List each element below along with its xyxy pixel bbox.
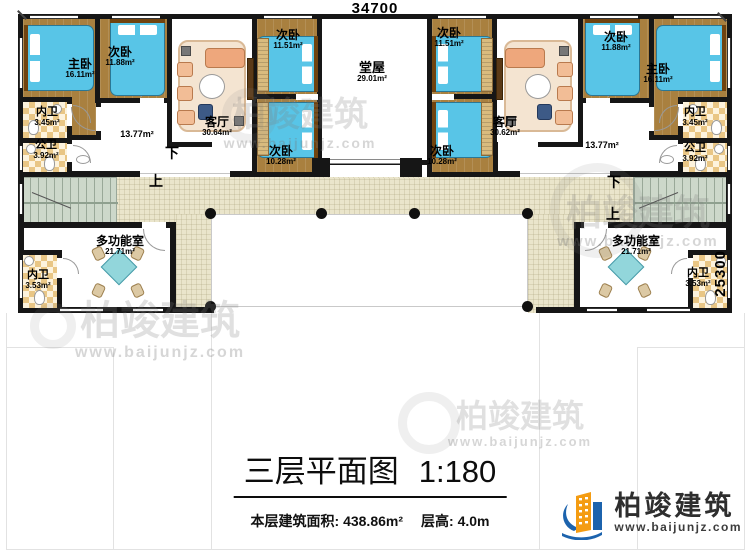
ghost-outline-line [6, 313, 7, 550]
brand-logo-icon [554, 486, 608, 540]
room-label-living-right: 客厅30.62m² [490, 116, 520, 137]
door-opening [140, 98, 164, 103]
floor-height-label: 层高: [421, 513, 458, 529]
window [264, 15, 312, 19]
window [727, 146, 731, 170]
watermark-url: www.baijunjz.com [224, 135, 377, 151]
wall [536, 307, 574, 313]
side-table [559, 46, 569, 56]
title-block: 三层平面图1:180 本层建筑面积: 438.86m²层高: 4.0m [234, 446, 507, 531]
door-opening [142, 222, 166, 228]
room-area: 21.71m² [96, 248, 144, 256]
armchair [177, 62, 193, 77]
room-area: 3.92m² [33, 152, 58, 160]
room-label-main-hall: 堂屋29.01m² [357, 61, 387, 83]
room-label-bath-in-tl: 内卫3.45m² [34, 107, 59, 127]
room-area: 11.51m² [273, 42, 302, 50]
room-name: 公卫 [682, 143, 707, 155]
watermark-brand: 柏竣建筑 [456, 398, 584, 434]
room-name: 多功能室 [96, 235, 144, 248]
room-label-bed1151-left: 次卧11.51m² [273, 29, 302, 50]
staircase-left [21, 177, 117, 227]
toilet-icon [711, 120, 722, 135]
room-area: 10.28m² [427, 158, 457, 166]
armchair [177, 86, 193, 101]
window [30, 15, 78, 19]
room-label-bed1188-left: 次卧11.88m² [105, 46, 134, 67]
armchair [557, 86, 573, 101]
room-area: 3.53m² [25, 282, 50, 290]
coffee-table [199, 74, 225, 99]
room-name: 内卫 [34, 107, 59, 119]
room-area: 3.53m² [685, 280, 710, 288]
door-opening [649, 107, 654, 131]
watermark-url: www.baijunjz.com [75, 344, 245, 362]
door-opening [432, 94, 454, 100]
room-label-multi-left: 多功能室21.71m² [96, 235, 144, 256]
window [19, 146, 23, 170]
floor-area-label: 本层建筑面积: [251, 513, 344, 529]
watermark-logo-icon [30, 303, 76, 349]
armchair [177, 110, 195, 125]
room-label-bath-in-tr: 内卫3.45m² [682, 107, 707, 127]
window [727, 184, 731, 214]
watermark-text: 柏竣建筑www.baijunjz.com [448, 398, 592, 450]
floor-area-value: 438.86m² [343, 513, 403, 529]
door-opening [586, 98, 610, 103]
stair-label-up-right: 上 [606, 207, 620, 221]
stair-label-down-right: 下 [607, 175, 621, 189]
ghost-outline-line [113, 347, 114, 550]
room-name: 多功能室 [612, 235, 660, 248]
room-area: 11.51m² [434, 40, 463, 48]
armchair [557, 62, 573, 77]
door-opening [67, 144, 72, 162]
wall-stub [400, 158, 422, 177]
floor-height-value: 4.0m [458, 513, 490, 529]
room-label-bed1151-right: 次卧11.51m² [434, 27, 463, 48]
toilet-icon [34, 290, 45, 305]
room-area: 11.88m² [601, 44, 630, 52]
window [674, 15, 722, 19]
courtyard-opening [211, 214, 528, 307]
coffee-table [525, 74, 551, 99]
room-area: 10.28m² [266, 158, 296, 166]
column-dot [409, 208, 420, 219]
room-area: 3.45m² [34, 119, 59, 127]
door-opening [57, 258, 62, 278]
dimension-width: 34700 [352, 0, 399, 17]
wardrobe [257, 38, 269, 92]
door-opening [498, 142, 538, 147]
room-name: 主卧 [643, 63, 672, 76]
brand-logo-text: 柏竣建筑 www.baijunjz.com [614, 492, 742, 535]
room-label-living-left: 客厅30.64m² [202, 116, 232, 137]
room-area: 21.71m² [612, 248, 660, 256]
room-label-bath-pub-tr: 公卫3.92m² [682, 143, 707, 163]
watermark-text: 柏竣建筑www.baijunjz.com [75, 298, 245, 362]
room-name: 客厅 [490, 116, 520, 129]
vanity-sink-icon [660, 155, 674, 164]
room-label-multi-right: 多功能室21.71m² [612, 235, 660, 256]
room-name: 内卫 [682, 107, 707, 119]
room-label-bed1028-right: 次卧10.28m² [427, 145, 457, 166]
room-name: 内卫 [685, 268, 710, 280]
stair-label-down-left: 下 [165, 146, 179, 160]
room-name: 次卧 [601, 31, 630, 44]
room-label-bed1028-left: 次卧10.28m² [266, 145, 296, 166]
room-name: 客厅 [202, 116, 232, 129]
room-name: 主卧 [65, 58, 94, 71]
column-dot [522, 301, 533, 312]
room-area: 3.92m² [682, 155, 707, 163]
room-area: 29.01m² [357, 75, 387, 83]
sink-icon [24, 256, 34, 266]
room-area: 30.64m² [202, 129, 232, 137]
watermark-text: 柏竣建筑www.baijunjz.com [224, 96, 377, 151]
corridor-area-label-right: 13.77m² [585, 141, 619, 151]
column-dot [522, 208, 533, 219]
tv-cabinet [496, 58, 503, 100]
watermark-brand: 柏竣建筑 [566, 192, 710, 233]
room-label-bath-in-bl: 内卫3.53m² [25, 270, 50, 290]
stair-direction-arrow [32, 192, 71, 209]
room-area: 16.11m² [65, 71, 94, 79]
window [587, 308, 617, 312]
floor-plan-page: { "dimensions": { "width": "34700", "dep… [0, 0, 750, 557]
room-name: 公卫 [33, 140, 58, 152]
room-area: 30.62m² [490, 129, 520, 137]
accent-chair [537, 104, 552, 120]
room-name: 次卧 [105, 46, 134, 59]
room-name: 次卧 [266, 145, 296, 158]
hall-door-threshold [330, 159, 400, 164]
stair-label-up-left: 上 [149, 174, 163, 188]
stair-divider [22, 202, 118, 204]
room-name: 次卧 [273, 29, 302, 42]
window [19, 260, 23, 298]
room-area: 16.11m² [643, 76, 672, 84]
watermark-brand: 柏竣建筑 [232, 96, 368, 134]
window [19, 184, 23, 214]
plan-scale: 1:180 [419, 454, 497, 489]
ghost-outline-line [6, 549, 744, 550]
room-area: 11.88m² [105, 59, 134, 67]
room-name: 内卫 [25, 270, 50, 282]
room-name: 堂屋 [357, 61, 387, 75]
plan-title: 三层平面图1:180 [234, 446, 507, 498]
column-dot [205, 208, 216, 219]
room-area: 3.45m² [682, 119, 707, 127]
column-dot [316, 208, 327, 219]
window [727, 38, 731, 88]
window [647, 308, 690, 312]
dimension-depth: 25300 [712, 250, 729, 297]
plan-title-text: 三层平面图 [244, 454, 399, 489]
sink-icon [714, 144, 724, 154]
side-table [181, 46, 191, 56]
corridor-area-label-left: 13.77m² [120, 130, 154, 140]
room-name: 次卧 [434, 27, 463, 40]
ghost-outline-line [744, 313, 745, 550]
brand-logo: 柏竣建筑 www.baijunjz.com [554, 486, 742, 540]
watermark-brand: 柏竣建筑 [80, 299, 240, 343]
door-opening [96, 107, 101, 131]
room-label-master-right: 主卧16.11m² [643, 63, 672, 84]
room-name: 次卧 [427, 145, 457, 158]
room-label-bed1188-right: 次卧11.88m² [601, 31, 630, 52]
brand-name: 柏竣建筑 [614, 492, 742, 522]
vanity-sink-icon [76, 155, 90, 164]
room-area: 13.77m² [585, 141, 619, 151]
wall-stub [312, 158, 330, 177]
room-area: 13.77m² [120, 130, 154, 140]
window [438, 15, 486, 19]
room-label-bath-in-br: 内卫3.53m² [685, 268, 710, 288]
sofa [505, 48, 545, 68]
ghost-outline-line [637, 347, 744, 348]
plan-subtitle: 本层建筑面积: 438.86m²层高: 4.0m [234, 511, 507, 531]
room-label-master-left: 主卧16.11m² [65, 58, 94, 79]
window [19, 38, 23, 88]
wardrobe [481, 38, 493, 92]
brand-url: www.baijunjz.com [614, 521, 742, 534]
sofa [205, 48, 245, 68]
armchair [555, 110, 573, 125]
room-label-bath-pub-tl: 公卫3.92m² [33, 140, 58, 160]
